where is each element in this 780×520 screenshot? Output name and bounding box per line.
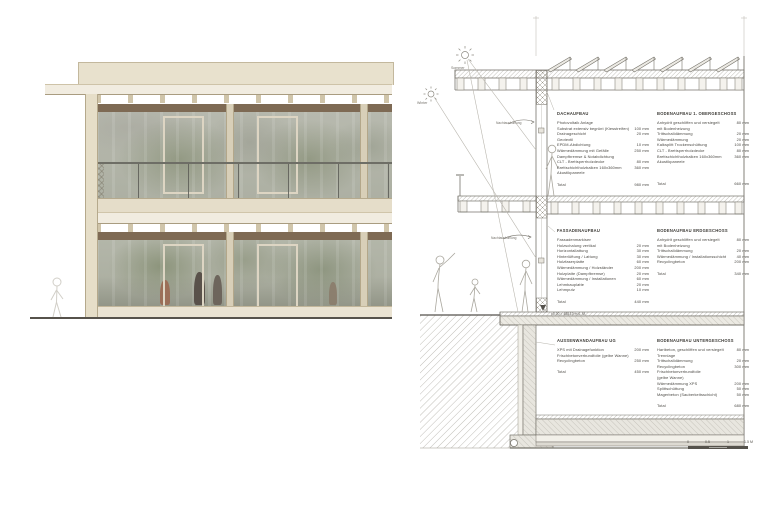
scale-segment (688, 446, 708, 449)
spec-row-name: Akustikpaneele (557, 170, 585, 176)
spec-row-name: Recyclingbeton (557, 358, 585, 364)
total-label: Total (557, 299, 566, 305)
spec-block-title: BODENAUFBAU 1. OBERGESCHOSS (657, 111, 749, 117)
scale-bar: 0 0.5 1 1.5 M (688, 440, 754, 449)
lintel-band-lower (96, 232, 392, 240)
roof-parapet (78, 62, 394, 85)
total-value: 660 mm (731, 181, 749, 187)
spec-row-name: Magerbeton (Sauberkeitsschicht) (657, 392, 717, 398)
scale-tick: 1 (727, 440, 729, 444)
scale-segment (728, 446, 748, 449)
spec-block-fassade: FASSADENAUFBAU FassadenmarkisenHolzschal… (557, 228, 649, 304)
spec-row-value: 200 mm (731, 259, 749, 265)
spec-block-title: DACHAUFBAU (557, 111, 649, 117)
architectural-sheet: Sommer Winter Nachtauskühlung Nachtauskü… (0, 0, 780, 520)
lintel-band-upper (96, 104, 392, 112)
spec-block-title: BODENAUFBAU UNTERGESCHOSS (657, 338, 749, 344)
label-level-eg: ±0.00 = 488.10 m ü. M. (551, 312, 586, 316)
label-night-cooling-eg: Nachtauskühlung (491, 236, 516, 240)
scale-bar-segments (688, 446, 748, 449)
total-value: 440 mm (631, 299, 649, 305)
total-label: Total (557, 369, 566, 375)
airflow-arrows (503, 120, 534, 239)
balcony-fascia (85, 212, 392, 224)
spec-block-dachaufbau: DACHAUFBAU Photovoltaik AnlageSubstrat e… (557, 111, 649, 187)
total-value: 340 mm (731, 271, 749, 277)
spec-rows: Hartbeton, geschliffen und versiegelt80 … (657, 347, 749, 397)
scale-bar-ticks: 0 0.5 1 1.5 M (688, 440, 754, 445)
total-label: Total (657, 271, 666, 277)
spec-row-name: Lehmputz (557, 287, 575, 293)
figure-interior-eg (520, 260, 532, 312)
total-label: Total (657, 403, 666, 409)
spec-rows: FassadenmarkisenHolzschalung vertikal20 … (557, 237, 649, 293)
total-value: 450 mm (631, 369, 649, 375)
label-summer-sun: Sommer (451, 66, 465, 70)
scale-segment (708, 446, 728, 449)
ground-line (30, 317, 392, 319)
scale-tick: 0.5 (705, 440, 710, 444)
spec-row: Akustikpaneele (557, 170, 649, 176)
occupant-silhouette (213, 275, 222, 305)
figures (433, 145, 558, 312)
total-label: Total (557, 182, 566, 188)
spec-rows: Anhydrit geschliffen und versiegelt80 mm… (657, 120, 749, 165)
total-label: Total (657, 181, 666, 187)
facade-wall (536, 70, 547, 312)
sun-summer-icon (456, 46, 474, 64)
corner-column (85, 94, 98, 318)
spec-block-boden-eg: BODENAUFBAU ERDGESCHOSS Anhydrit geschli… (657, 228, 749, 276)
total-value: 980 mm (631, 182, 649, 188)
door-frame (257, 244, 298, 310)
sun-winter-icon (424, 87, 439, 102)
sketch-figure (44, 276, 70, 318)
figure-pointing (433, 253, 455, 312)
spec-row-value: 10 mm (634, 287, 649, 293)
spec-row-value (646, 170, 649, 176)
joist-row-upper (96, 95, 392, 103)
spec-total: Total 660 mm (657, 181, 749, 187)
spec-row: Recyclingbeton200 mm (657, 259, 749, 265)
spec-rows: XPS mit Drainagefunktion200 mmFrischbeto… (557, 347, 649, 364)
building-elevation (30, 58, 392, 320)
spec-row: Akustikpaneele (657, 159, 749, 165)
spec-block-title: BODENAUFBAU ERDGESCHOSS (657, 228, 749, 234)
spec-row-value: 250 mm (631, 358, 649, 364)
spec-total: Total 980 mm (557, 182, 649, 188)
spec-row: Lehmputz10 mm (557, 287, 649, 293)
figure-child (470, 279, 480, 312)
scale-tick: 0 (687, 440, 689, 444)
total-value: 680 mm (731, 403, 749, 409)
spec-row-name: Akustikpaneele (657, 159, 685, 165)
mid-floor-slab (547, 196, 744, 214)
label-night-cooling-og: Nachtauskühlung (496, 121, 521, 125)
occupant-silhouette (329, 282, 337, 305)
roof-assembly (455, 70, 744, 90)
glazing-lower (96, 240, 392, 306)
balcony-railing (88, 162, 392, 200)
section-cut-line (533, 16, 747, 56)
spec-row: Magerbeton (Sauberkeitsschicht)50 mm (657, 392, 749, 398)
spec-row-name: Recyclingbeton (657, 259, 685, 265)
spec-rows: Photovoltaik AnlageSubstrat extensiv beg… (557, 120, 649, 176)
spec-block-boden-og: BODENAUFBAU 1. OBERGESCHOSS Anhydrit ges… (657, 111, 749, 187)
door-frame (163, 244, 204, 310)
scale-tick: 1.5 M (744, 440, 753, 444)
spec-row-value (746, 159, 749, 165)
spec-total: Total 340 mm (657, 271, 749, 277)
sun-ray-lines (434, 59, 536, 312)
spec-rows: Anhydrit geschliffen und versiegelt80 mm… (657, 237, 749, 265)
balcony (456, 175, 536, 212)
earth-hatch (420, 315, 518, 448)
spec-block-aussenwand-ug: AUSSENWANDAUFBAU UG XPS mit Drainagefunk… (557, 338, 649, 375)
spec-block-title: FASSADENAUFBAU (557, 228, 649, 234)
spec-total: Total 680 mm (657, 403, 749, 409)
spec-block-boden-ug: BODENAUFBAU UNTERGESCHOSS Hartbeton, ges… (657, 338, 749, 409)
spec-total: Total 450 mm (557, 369, 649, 375)
spec-row-value: 50 mm (734, 392, 749, 398)
label-winter-sun: Winter (417, 101, 427, 105)
drainage-pipe (511, 440, 518, 447)
joist-row-lower (96, 224, 392, 232)
spec-total: Total 440 mm (557, 299, 649, 305)
spec-row: Recyclingbeton250 mm (557, 358, 649, 364)
floor-slab-band (88, 198, 392, 213)
spec-block-title: AUSSENWANDAUFBAU UG (557, 338, 649, 344)
